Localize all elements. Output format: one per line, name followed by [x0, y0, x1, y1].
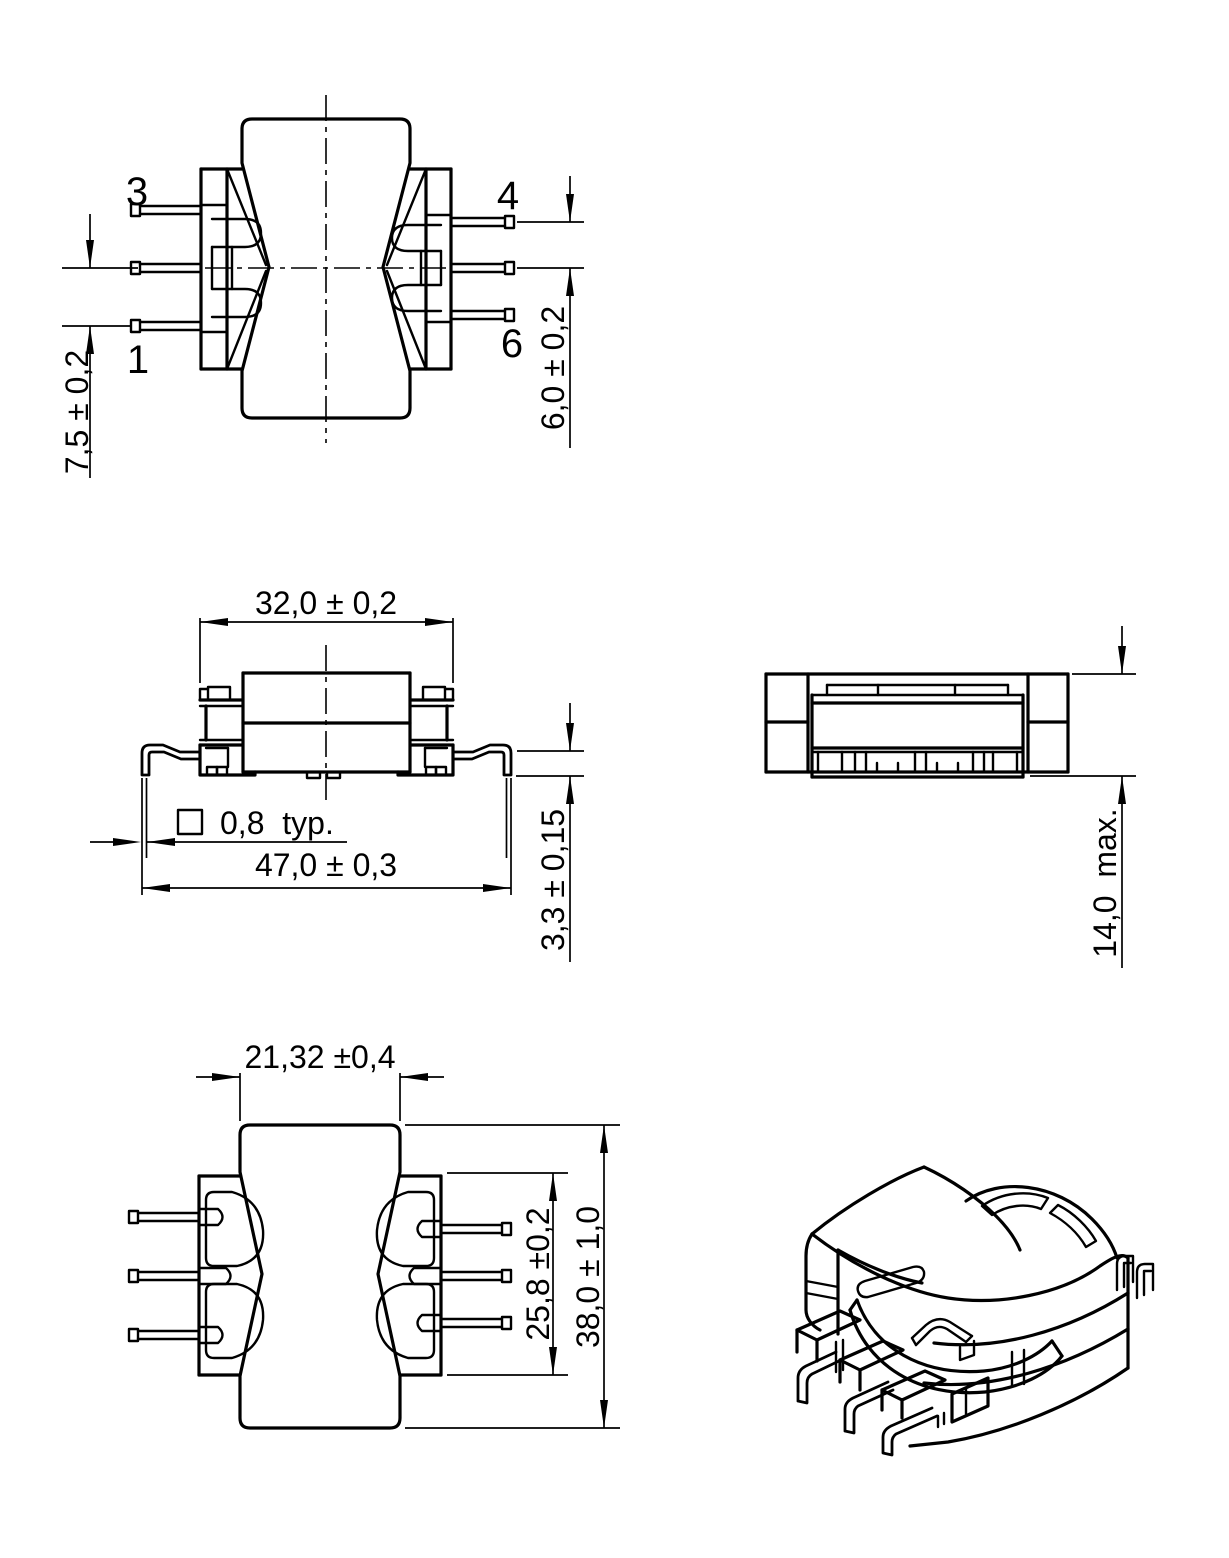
dim-flange-length: 25,8 ±0,2 [520, 1207, 556, 1340]
right-gullwing-lead [453, 745, 511, 775]
isometric-view [797, 1167, 1153, 1455]
square-symbol [178, 810, 202, 834]
left-gullwing-lead [142, 745, 200, 775]
front-rim [812, 1234, 1128, 1300]
left-pins [131, 204, 201, 332]
arch-window-2 [1050, 1205, 1096, 1247]
right-pins [451, 216, 514, 321]
right-flange-front [398, 687, 453, 775]
dim-lead-span: 47,0 ± 0,3 [255, 847, 397, 883]
pin-label-3: 3 [126, 170, 148, 214]
front-view: 32,0 ± 0,2 0,8 typ. 47,0 ± 0,3 [90, 585, 584, 962]
pin-label-1: 1 [127, 338, 149, 382]
pin-2 [131, 262, 201, 274]
dim-pin-pitch-right: 6,0 ± 0,2 [535, 306, 571, 430]
right-bobbin-flange [387, 169, 451, 369]
technical-drawing-sheet: 7,5 ± 0,2 6,0 ± 0,2 3 1 4 6 [0, 0, 1229, 1558]
top-left-edge [812, 1167, 924, 1234]
pin-label-6: 6 [501, 322, 523, 366]
winding-arc-inner [857, 1300, 1052, 1372]
right-flange-bottom [377, 1176, 441, 1375]
flange-face-edge [838, 1250, 922, 1283]
core-outline-bottom [240, 1125, 400, 1428]
hook-slot [912, 1319, 974, 1360]
top-view: 7,5 ± 0,2 6,0 ± 0,2 3 1 4 6 [59, 95, 584, 478]
bottom-view: 21,32 ±0,4 25,8 ±0,2 38,0 ± 1,0 [129, 1039, 620, 1428]
dim-body-width: 32,0 ± 0,2 [255, 585, 397, 621]
dimension-flange-length: 25,8 ±0,2 [447, 1173, 568, 1375]
left-flange-bottom [199, 1176, 263, 1375]
side-view: 14,0 max. [766, 626, 1136, 968]
winding-arc-outer [850, 1310, 1062, 1393]
dim-standoff: 3,3 ± 0,15 [535, 809, 571, 951]
left-flange-front [200, 687, 255, 775]
left-pins-bottom [129, 1211, 199, 1341]
dimension-pin-pitch-right: 6,0 ± 0,2 [517, 176, 584, 448]
dimension-core-length: 38,0 ± 1,0 [405, 1125, 620, 1428]
bobbin-side [812, 685, 1023, 777]
left-bobbin-flange [201, 169, 266, 369]
flange-arch-outer [966, 1187, 1117, 1258]
dim-core-width: 21,32 ±0,4 [244, 1039, 395, 1075]
dim-height: 14,0 max. [1087, 808, 1123, 957]
dimension-core-width: 21,32 ±0,4 [196, 1039, 444, 1121]
pin-6 [451, 309, 514, 321]
dim-pin-pitch-left: 7,5 ± 0,2 [59, 350, 95, 474]
dim-lead-size: 0,8 typ. [220, 805, 334, 841]
pin-5 [451, 262, 514, 274]
right-pins-bottom [441, 1223, 511, 1329]
retainer-tabs [1117, 1256, 1153, 1298]
drawing-canvas: 7,5 ± 0,2 6,0 ± 0,2 3 1 4 6 [0, 0, 1229, 1558]
pin-1 [131, 320, 201, 332]
pin-label-4: 4 [497, 174, 519, 218]
dim-core-length: 38,0 ± 1,0 [570, 1206, 606, 1348]
dimension-standoff: 3,3 ± 0,15 [516, 703, 584, 962]
dimension-height: 14,0 max. [1030, 626, 1136, 968]
